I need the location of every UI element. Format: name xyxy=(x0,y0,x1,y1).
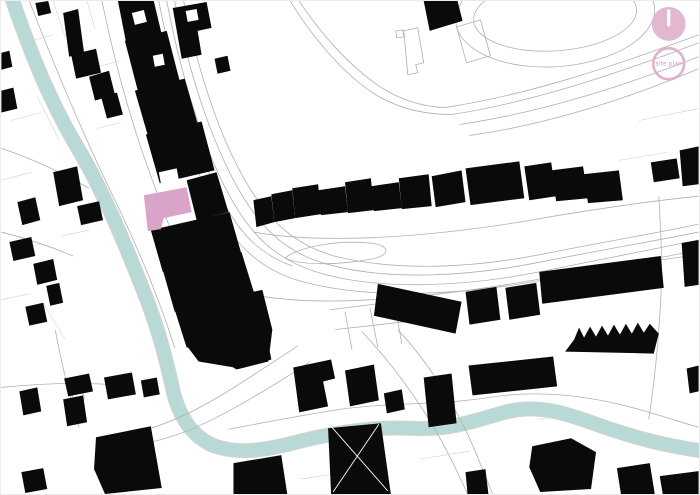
site-plan-map: site plan xyxy=(1,1,699,494)
site-plan-figure: site plan xyxy=(0,0,700,495)
site-plan-badge: site plan xyxy=(653,48,684,79)
north-indicator-icon xyxy=(652,7,686,41)
site-plan-badge-label: site plan xyxy=(655,62,682,68)
running-track xyxy=(452,1,658,74)
